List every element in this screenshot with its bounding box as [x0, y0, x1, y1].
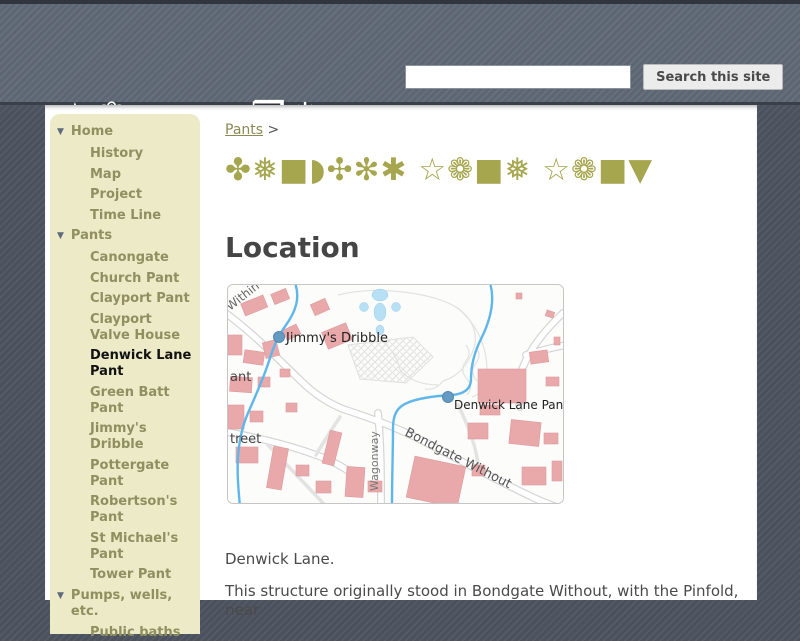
sidebar-section-pants[interactable]: ▼Pants — [50, 228, 200, 245]
sidebar-item-denwick-lane-pant[interactable]: Denwick Lane Pant — [50, 348, 200, 380]
sidebar-item-robertson-s-pant[interactable]: Robertson's Pant — [50, 494, 200, 526]
sidebar-section-label: Home — [71, 124, 113, 140]
search-button[interactable]: Search this site — [643, 64, 783, 90]
map-label-denwick-lane-pant: Denwick Lane Pant — [454, 398, 563, 412]
collapse-arrow-icon[interactable]: ▼ — [57, 228, 64, 244]
sidebar-item-map[interactable]: Map — [50, 167, 200, 183]
sidebar-item-time-line[interactable]: Time Line — [50, 208, 200, 224]
breadcrumb-link-pants[interactable]: Pants — [225, 122, 263, 138]
sidebar-item-clayport-pant[interactable]: Clayport Pant — [50, 291, 200, 307]
sidebar-item-church-pant[interactable]: Church Pant — [50, 271, 200, 287]
main-column: Pants > ✤❅■◗✣✻✱ ☆❁■❅ ☆❁■▼ Location — [225, 105, 757, 620]
map-street-label-street-partial: treet — [230, 432, 261, 447]
location-heading: Location — [225, 233, 757, 263]
paragraph-structure: This structure originally stood in Bondg… — [225, 582, 750, 620]
sidebar-item-tower-pant[interactable]: Tower Pant — [50, 567, 200, 583]
sidebar-item-green-batt-pant[interactable]: Green Batt Pant — [50, 385, 200, 417]
map-marker-denwick-lane-pant[interactable] — [443, 392, 454, 403]
sidebar-section-label: Pants — [71, 228, 112, 244]
sidebar-section-pumps-wells-etc[interactable]: ▼Pumps, wells, etc. — [50, 588, 200, 620]
map-canvas: Jimmy's Dribble Denwick Lane Pant Within… — [228, 285, 563, 503]
site-header: ☆❁■▼▲ ❒❅ ✡●■◗✣✻✱ Search this site — [0, 0, 800, 105]
paragraph-denwick-lane: Denwick Lane. — [225, 550, 750, 569]
sidebar-section-label: Pumps, wells, etc. — [71, 588, 192, 620]
map-marker-jimmys-dribble[interactable] — [274, 332, 285, 343]
sidebar-item-project[interactable]: Project — [50, 187, 200, 203]
sidebar-item-history[interactable]: History — [50, 146, 200, 162]
collapse-arrow-icon[interactable]: ▼ — [57, 588, 64, 604]
sidebar-item-canongate[interactable]: Canongate — [50, 250, 200, 266]
sidebar-item-public-baths[interactable]: Public baths — [50, 625, 200, 641]
page-title-symbols: ✤❅■◗✣✻✱ ☆❁■❅ ☆❁■▼ — [225, 151, 757, 189]
sidebar-section-home[interactable]: ▼Home — [50, 124, 200, 141]
map-street-label-pant-partial: ant — [230, 370, 251, 385]
search-area: Search this site — [405, 64, 783, 90]
collapse-arrow-icon[interactable]: ▼ — [57, 124, 64, 140]
map-street-label-wagonway: Wagonway — [368, 431, 381, 491]
map-label-jimmys-dribble: Jimmy's Dribble — [285, 331, 388, 346]
location-map[interactable]: Jimmy's Dribble Denwick Lane Pant Within… — [227, 284, 564, 504]
search-input[interactable] — [405, 65, 631, 89]
sidebar-item-st-michael-s-pant[interactable]: St Michael's Pant — [50, 531, 200, 563]
sidebar-item-clayport-valve-house[interactable]: Clayport Valve House — [50, 312, 200, 344]
sidebar-item-pottergate-pant[interactable]: Pottergate Pant — [50, 458, 200, 490]
content-area: ▼HomeHistoryMapProjectTime Line▼PantsCan… — [45, 105, 757, 600]
top-strip — [0, 0, 800, 4]
sidebar-nav: ▼HomeHistoryMapProjectTime Line▼PantsCan… — [50, 114, 200, 634]
breadcrumb-separator: > — [268, 122, 280, 138]
breadcrumb: Pants > — [225, 122, 757, 138]
sidebar-item-jimmy-s-dribble[interactable]: Jimmy's Dribble — [50, 421, 200, 453]
